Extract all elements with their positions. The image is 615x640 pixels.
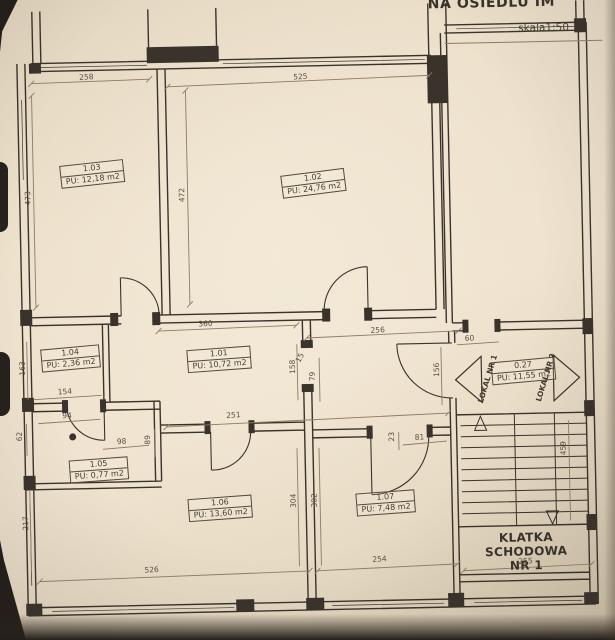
floor-plan: NA OSIEDLU IM skala1:50 1.03 PU: 12,18 m… [0,0,615,640]
dimension-label: 473 [23,191,32,206]
dimension-label: 254 [372,554,387,564]
dimension-label: 98 [117,437,127,447]
dimension-label: 23 [387,432,396,442]
room-label-1-05: 1.05 PU: 0,77 m2 [69,456,130,483]
dimension-label: 304 [289,494,298,509]
photo-edge-binder-mark [0,352,10,416]
photo-edge-bottom [0,614,615,640]
dimension-label: 158 [288,360,297,375]
dimension-label: 60 [464,333,474,343]
photo-edge-right [604,0,615,640]
dimension-label: 217 [21,516,30,531]
dimension-label: 255 [518,556,533,566]
dimension-label: 472 [177,188,186,203]
dimension-label: 302 [310,493,319,508]
fixture-dot [69,433,76,440]
stairwell-label: KLATKA SCHODOWA NR 1 [457,529,596,574]
room-label-1-06: 1.06 PU: 13,60 m2 [187,495,253,523]
dimension-label: 360 [198,319,213,329]
stairs-up-arrow-icon [474,416,486,430]
room-label-1-07: 1.07 PU: 7,48 m2 [355,489,416,516]
lokal-2-arrow-icon [553,354,580,401]
dimension-label: 525 [293,72,308,82]
dimension-label: 526 [144,565,159,575]
dimension-label: 79 [308,372,317,382]
room-label-1-01: 1.01 PU: 10,72 m2 [186,346,252,374]
photo-edge-binder-mark [0,162,8,232]
dimension-label: 459 [559,441,568,456]
dimension-label: 256 [370,325,385,335]
scale-label: skala1:50 [518,21,569,34]
dimension-label: 163 [18,361,27,376]
dimension-label: 156 [432,363,441,378]
dimension-label: 258 [79,72,94,82]
dimension-label: 89 [143,435,152,445]
dimension-label: 94 [62,411,72,421]
dimension-label: 154 [57,387,72,397]
dimension-label: 81 [415,432,425,442]
dimension-label: 62 [15,432,24,442]
dimension-label: 251 [226,410,241,420]
stairwell-name: KLATKA SCHODOWA [457,529,596,560]
